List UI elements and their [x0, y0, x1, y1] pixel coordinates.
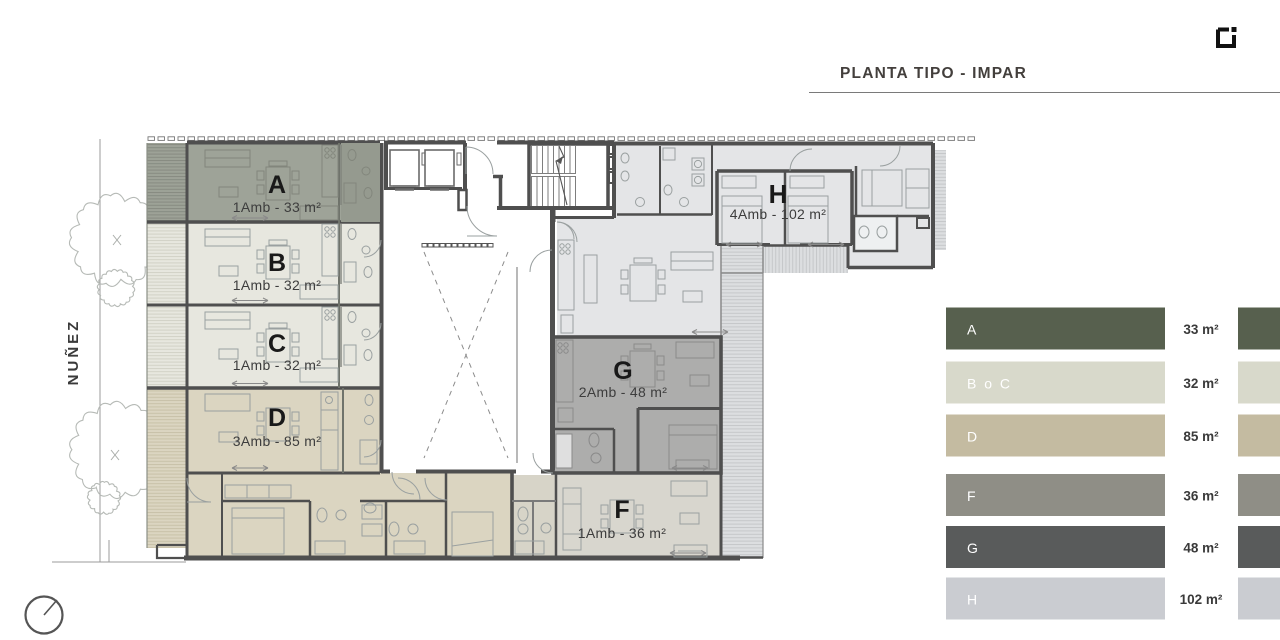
svg-text:33 m²: 33 m² — [1183, 322, 1219, 337]
svg-text:32 m²: 32 m² — [1183, 376, 1219, 391]
svg-text:1Amb - 32 m²: 1Amb - 32 m² — [233, 277, 321, 293]
svg-text:36 m²: 36 m² — [1183, 489, 1219, 504]
svg-text:A: A — [268, 171, 286, 199]
svg-text:1Amb - 33 m²: 1Amb - 33 m² — [233, 199, 321, 215]
svg-text:48 m²: 48 m² — [1183, 541, 1219, 556]
svg-text:F: F — [967, 488, 978, 504]
svg-text:D: D — [967, 429, 979, 445]
svg-text:1Amb - 32 m²: 1Amb - 32 m² — [233, 357, 321, 373]
svg-text:85 m²: 85 m² — [1183, 429, 1219, 444]
svg-text:NUÑEZ: NUÑEZ — [64, 319, 82, 386]
svg-text:G: G — [967, 540, 980, 556]
svg-text:PLANTA TIPO - IMPAR: PLANTA TIPO - IMPAR — [840, 65, 1027, 82]
svg-text:H: H — [967, 592, 979, 608]
svg-text:D: D — [268, 404, 286, 432]
svg-text:F: F — [614, 496, 629, 524]
svg-text:4Amb - 102 m²: 4Amb - 102 m² — [730, 206, 827, 222]
svg-text:C: C — [268, 330, 286, 358]
svg-text:3Amb - 85 m²: 3Amb - 85 m² — [233, 433, 321, 449]
svg-text:B: B — [268, 249, 286, 277]
svg-text:H: H — [769, 179, 788, 209]
svg-text:1Amb - 36 m²: 1Amb - 36 m² — [578, 525, 666, 541]
svg-text:2Amb - 48 m²: 2Amb - 48 m² — [579, 384, 667, 400]
svg-text:A: A — [967, 322, 978, 338]
svg-text:G: G — [613, 357, 632, 385]
svg-text:B o C: B o C — [967, 376, 1012, 392]
svg-text:102 m²: 102 m² — [1180, 592, 1223, 607]
